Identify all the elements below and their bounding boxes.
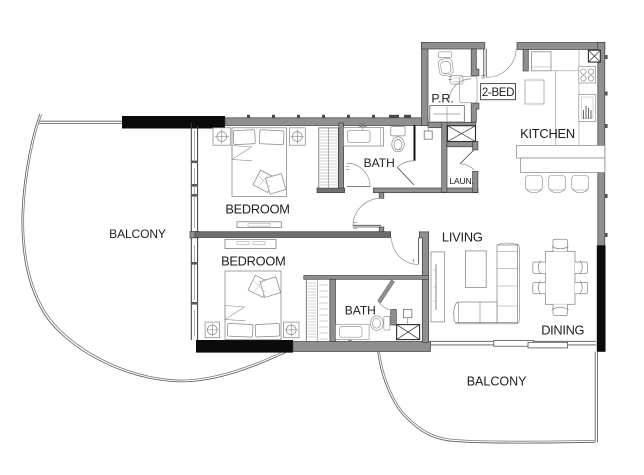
- svg-text:LIVING: LIVING: [442, 230, 483, 245]
- svg-text:KITCHEN: KITCHEN: [520, 126, 575, 141]
- svg-text:BATH: BATH: [345, 303, 376, 317]
- svg-text:BALCONY: BALCONY: [109, 227, 166, 241]
- svg-text:BEDROOM: BEDROOM: [225, 201, 289, 216]
- svg-text:LAUN.: LAUN.: [449, 176, 473, 186]
- svg-text:P.R.: P.R.: [431, 91, 453, 105]
- svg-text:BEDROOM: BEDROOM: [221, 253, 285, 268]
- svg-text:BALCONY: BALCONY: [467, 375, 527, 389]
- svg-text:2-BED: 2-BED: [482, 87, 514, 99]
- svg-text:BATH: BATH: [364, 156, 395, 170]
- svg-text:DINING: DINING: [541, 322, 584, 337]
